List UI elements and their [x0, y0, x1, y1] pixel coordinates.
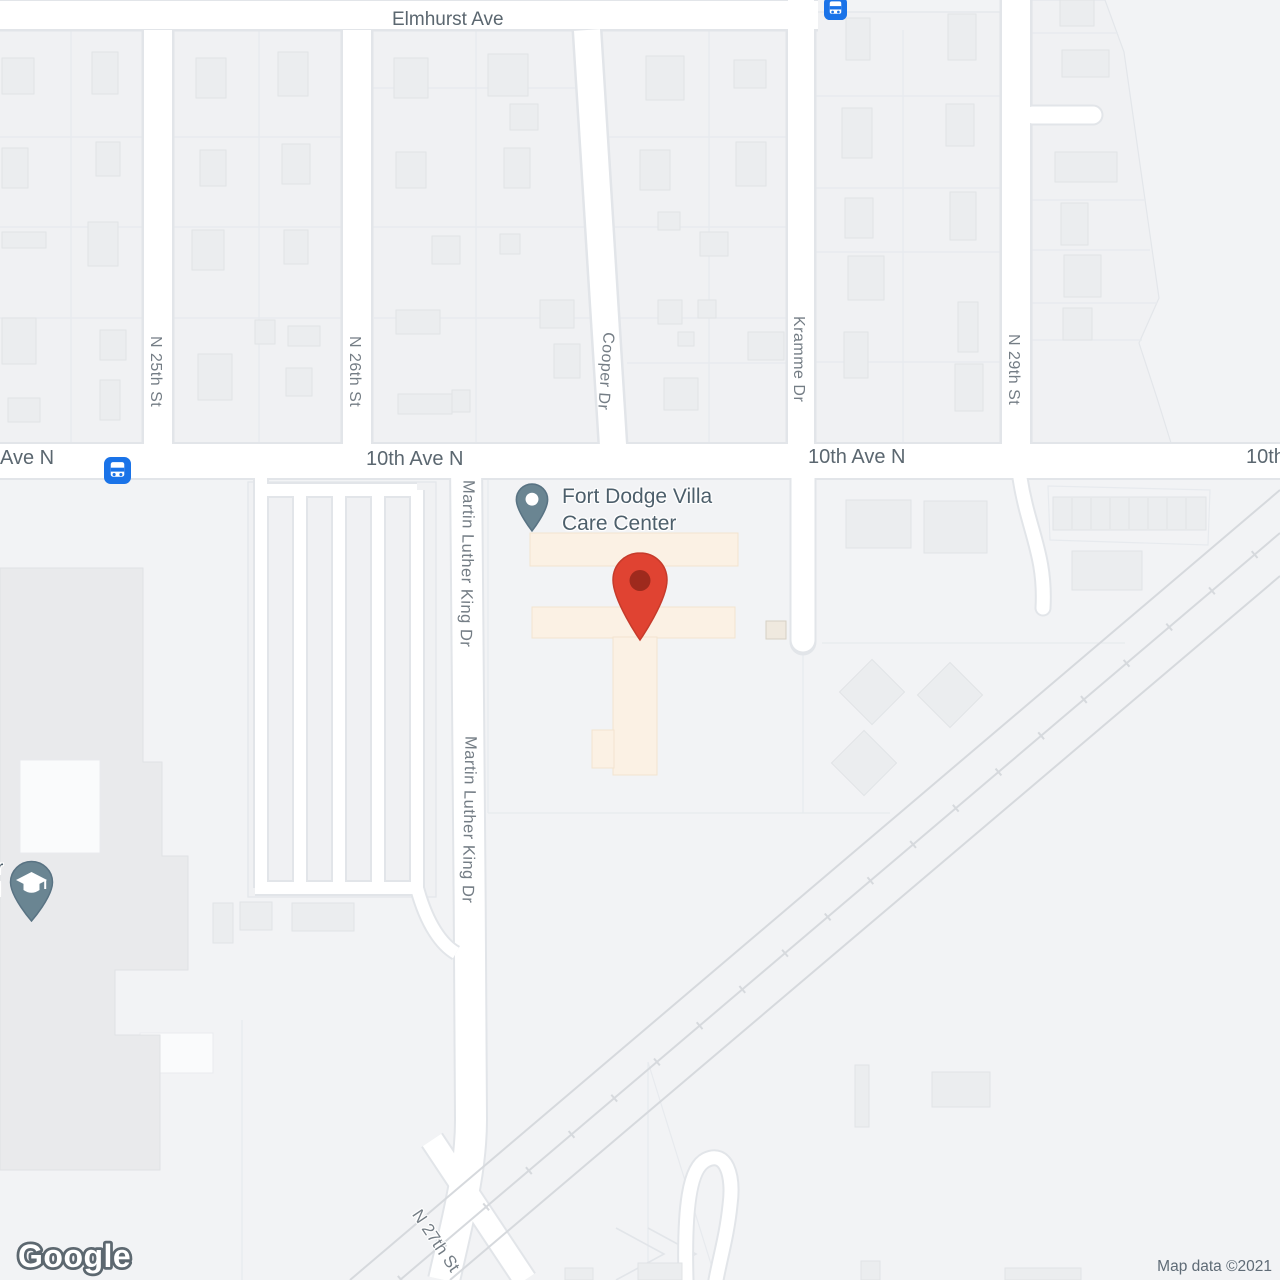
- street-label-n-26th-st: N 26th St: [345, 336, 363, 407]
- poi-label-line2[interactable]: Care Center: [562, 510, 676, 537]
- bus-stop-icon[interactable]: [104, 457, 131, 484]
- school-label-fragment-2: l: [0, 877, 1, 904]
- street-label-elmhurst-ave: Elmhurst Ave: [392, 9, 504, 31]
- street-label-n-25th-st: N 25th St: [146, 336, 164, 407]
- svg-text:Google: Google: [18, 1238, 131, 1274]
- red-location-marker[interactable]: [612, 552, 668, 647]
- street-label-mlk-dr-south: Martin Luther King Dr: [458, 736, 480, 904]
- poi-label-line1[interactable]: Fort Dodge Villa: [562, 483, 712, 510]
- street-label-n-29th-st: N 29th St: [1004, 334, 1022, 405]
- street-label-kramme-dr: Kramme Dr: [789, 316, 807, 402]
- street-label-10th-ave-left-partial: Ave N: [0, 447, 54, 470]
- place-pin-icon[interactable]: [515, 483, 549, 538]
- google-logo[interactable]: Google: [14, 1234, 174, 1280]
- map-canvas[interactable]: Elmhurst Ave Ave N 10th Ave N 10th Ave N…: [0, 0, 1280, 1280]
- street-label-10th-ave-right-edge: 10th Ave N: [1246, 446, 1280, 469]
- map-data-copyright: Map data ©2021: [1157, 1258, 1272, 1276]
- bus-stop-icon[interactable]: [824, 0, 847, 20]
- school-pin-icon[interactable]: [9, 860, 54, 928]
- street-label-10th-ave-west: 10th Ave N: [366, 448, 463, 471]
- street-label-10th-ave-east: 10th Ave N: [808, 446, 905, 469]
- street-label-mlk-dr-north: Martin Luther King Dr: [456, 480, 478, 648]
